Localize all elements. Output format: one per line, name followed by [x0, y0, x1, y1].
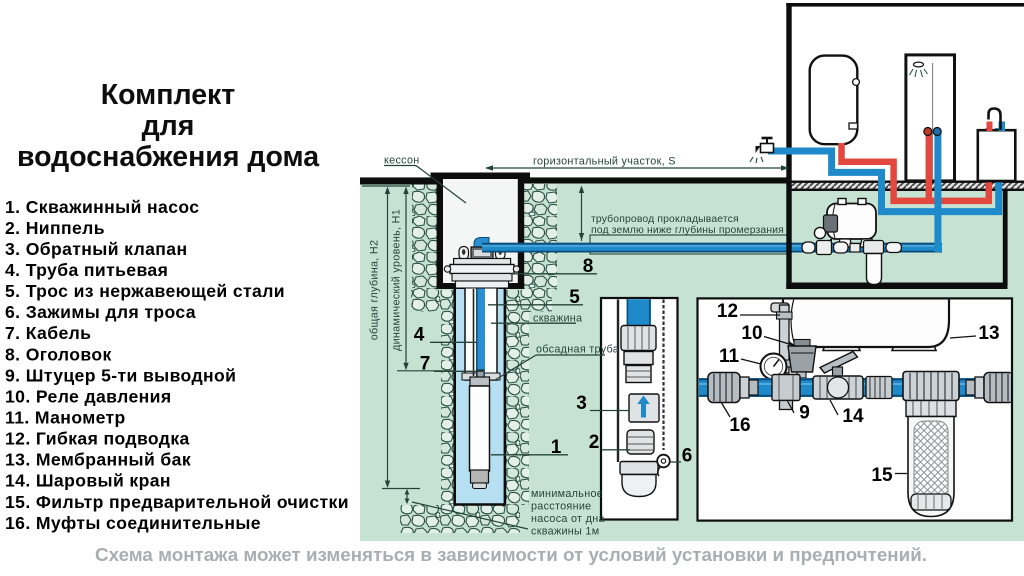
svg-text:кессон: кессон: [384, 155, 420, 167]
svg-text:16. Муфты соединительные: 16. Муфты соединительные: [5, 513, 261, 533]
svg-text:3: 3: [576, 393, 587, 414]
svg-text:горизонтальный участок, S: горизонтальный участок, S: [533, 156, 676, 168]
svg-text:2: 2: [589, 432, 600, 453]
svg-text:6. Зажимы для троса: 6. Зажимы для троса: [5, 302, 196, 322]
svg-text:10. Реле давления: 10. Реле давления: [5, 386, 171, 406]
svg-text:5. Трос из нержавеющей стали: 5. Трос из нержавеющей стали: [5, 281, 285, 301]
svg-text:трубопровод прокладывается: трубопровод прокладывается: [591, 213, 739, 225]
svg-text:9: 9: [799, 403, 810, 424]
svg-text:Комплект: Комплект: [101, 79, 236, 111]
svg-text:13. Мембранный бак: 13. Мембранный бак: [5, 450, 191, 470]
svg-text:16: 16: [729, 415, 750, 436]
svg-text:15: 15: [871, 465, 893, 486]
svg-text:под землю ниже глубины промерз: под землю ниже глубины промерзания: [591, 224, 784, 236]
svg-text:расстояние: расстояние: [531, 501, 591, 513]
svg-text:8. Оголовок: 8. Оголовок: [5, 344, 112, 364]
svg-text:12. Гибкая подводка: 12. Гибкая подводка: [5, 429, 190, 449]
svg-text:скважины 1м: скважины 1м: [531, 526, 599, 538]
svg-text:1: 1: [551, 437, 562, 458]
svg-text:5: 5: [569, 287, 580, 308]
svg-text:14: 14: [842, 406, 864, 427]
svg-text:скважина: скважина: [533, 313, 582, 325]
svg-text:насоса от дна: насоса от дна: [531, 513, 605, 525]
svg-text:14. Шаровый кран: 14. Шаровый кран: [5, 471, 171, 491]
svg-text:обсадная труба: обсадная труба: [536, 344, 619, 356]
svg-text:водоснабжения дома: водоснабжения дома: [17, 141, 320, 173]
svg-text:4. Труба питьевая: 4. Труба питьевая: [5, 260, 168, 280]
svg-text:15. Фильтр предварительной очи: 15. Фильтр предварительной очистки: [5, 492, 349, 512]
svg-text:2. Ниппель: 2. Ниппель: [5, 218, 105, 238]
svg-text:7. Кабель: 7. Кабель: [5, 323, 91, 343]
svg-text:для: для: [142, 110, 195, 142]
svg-text:8: 8: [583, 256, 594, 277]
svg-text:11: 11: [719, 346, 740, 367]
svg-text:10: 10: [741, 323, 762, 344]
svg-text:1. Скважинный насос: 1. Скважинный насос: [5, 197, 199, 217]
svg-text:Схема монтажа может изменяться: Схема монтажа может изменяться в зависим…: [95, 544, 927, 565]
svg-text:12: 12: [717, 301, 738, 322]
svg-text:минимальное: минимальное: [531, 488, 603, 500]
svg-text:общая глубина, Н2: общая глубина, Н2: [369, 240, 381, 341]
svg-text:13: 13: [978, 323, 999, 344]
svg-text:динамический уровень, Н1: динамический уровень, Н1: [391, 209, 403, 351]
svg-text:7: 7: [420, 354, 431, 375]
svg-text:4: 4: [414, 325, 425, 346]
svg-text:9. Штуцер 5-ти выводной: 9. Штуцер 5-ти выводной: [5, 365, 236, 385]
svg-text:3. Обратный клапан: 3. Обратный клапан: [5, 239, 187, 259]
svg-text:6: 6: [682, 446, 693, 467]
svg-text:11. Манометр: 11. Манометр: [5, 408, 126, 428]
